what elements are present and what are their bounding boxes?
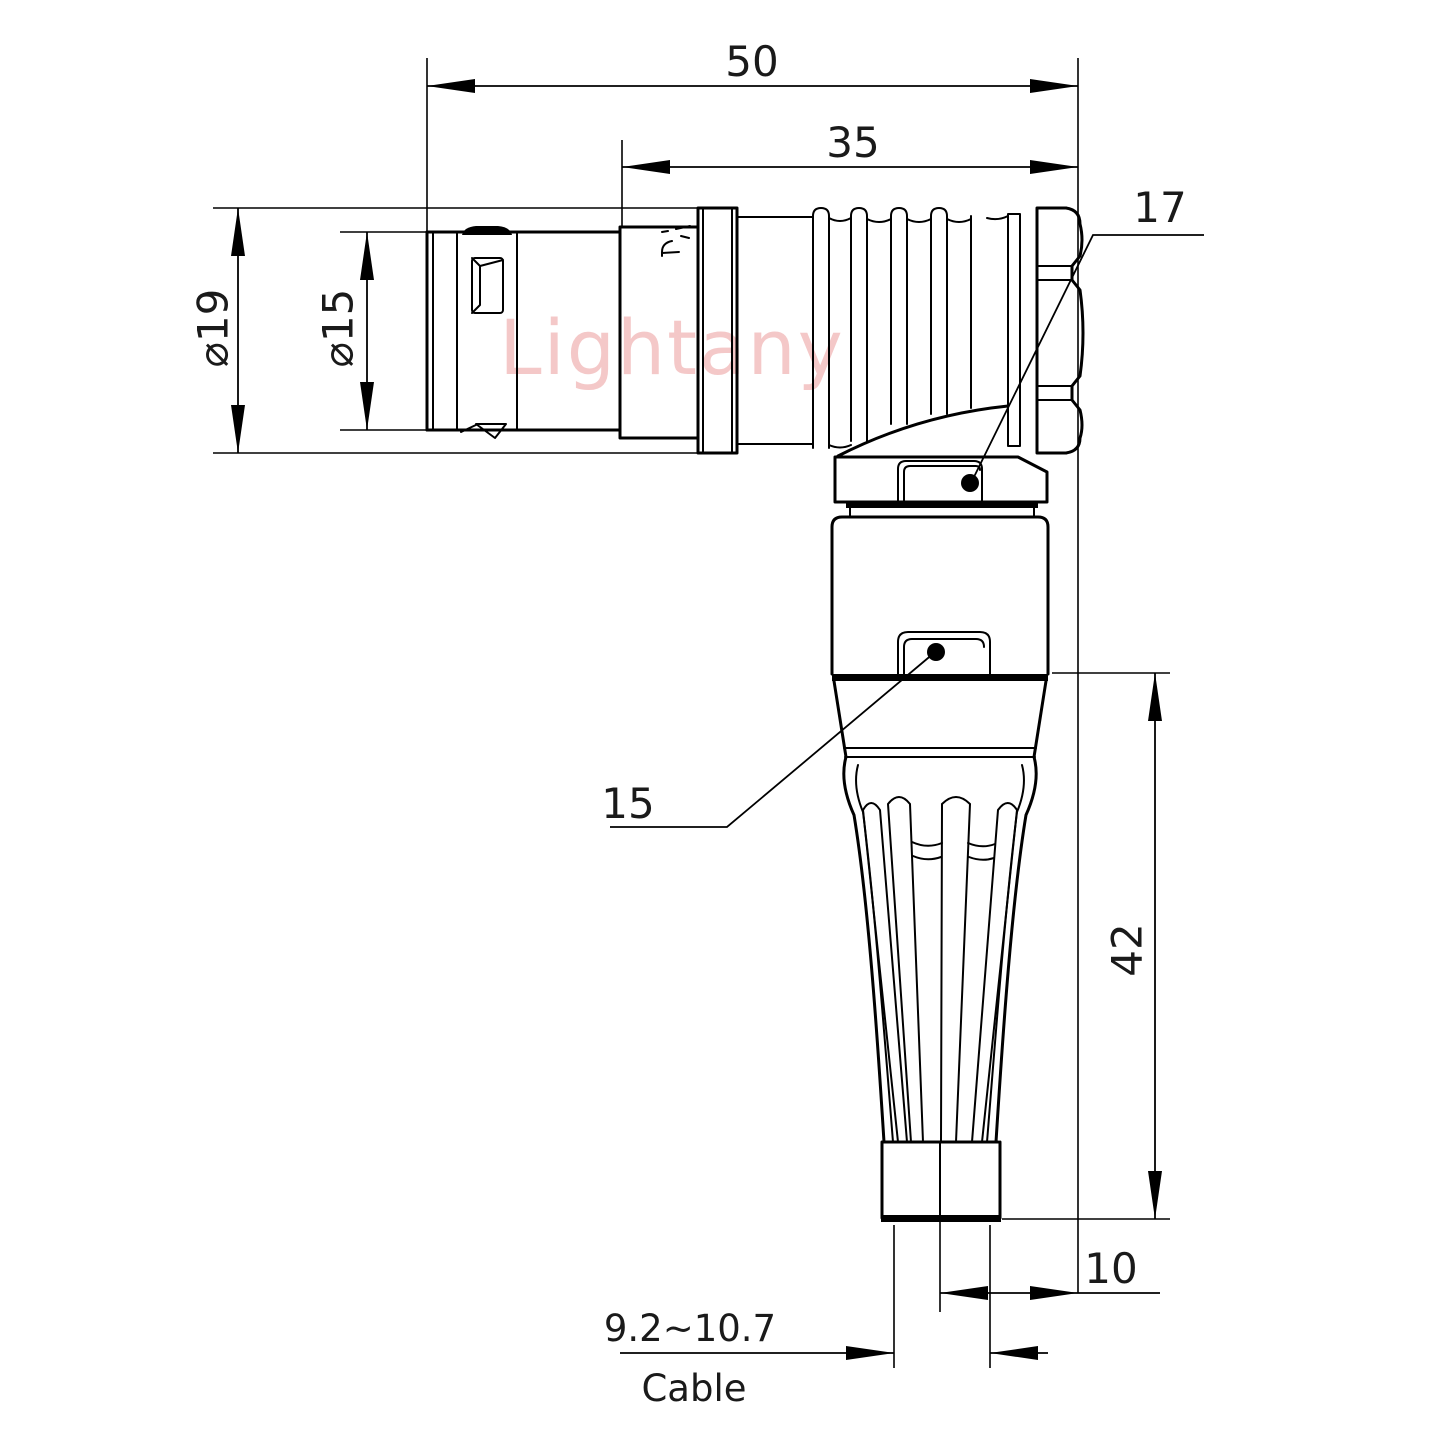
nut-hex-silhouette xyxy=(1066,208,1083,453)
fin-4 xyxy=(972,803,1017,1142)
leader-label-17: 17 xyxy=(1133,183,1186,232)
dimension-overall-length: 50 xyxy=(427,37,1078,232)
arrowhead-dia15-bottom xyxy=(360,382,374,430)
ferrule xyxy=(881,1142,1001,1222)
band-outline xyxy=(1008,214,1020,446)
fin-tie-lines xyxy=(912,842,995,860)
leader-elbow-nut: 17 xyxy=(972,183,1204,481)
boot-rib-4 xyxy=(931,208,947,414)
arrowhead-10-right xyxy=(1030,1286,1078,1300)
fin-3 xyxy=(941,797,970,1142)
elbow-hex-band xyxy=(835,457,1047,502)
watermark-text: Lightany xyxy=(499,303,844,392)
boot-top-surface xyxy=(737,216,1008,222)
rear-hex-nut xyxy=(1037,208,1083,453)
boot-rib-3 xyxy=(891,208,907,424)
latch-cap xyxy=(462,226,512,235)
leader-dot-15 xyxy=(927,643,945,661)
dimension-vertical-height: 42 xyxy=(1002,673,1170,1219)
arrowhead-50-right xyxy=(1030,79,1078,93)
taper-sides xyxy=(834,681,1046,757)
strain-relief xyxy=(844,757,1036,1142)
leader-label-15: 15 xyxy=(601,779,654,828)
nut-body xyxy=(1037,208,1066,453)
arrowhead-50-left xyxy=(427,79,475,93)
arrowhead-cable-right xyxy=(990,1346,1038,1360)
flare-right-inner xyxy=(987,765,1024,1142)
technical-drawing-canvas: Lightany xyxy=(0,0,1440,1440)
dim-label-10: 10 xyxy=(1084,1244,1137,1293)
elbow-section xyxy=(832,457,1048,1222)
dimension-cable-diameter: 9.2~10.7 Cable xyxy=(604,1225,1048,1410)
arrowhead-cable-left xyxy=(846,1346,894,1360)
arrowhead-42-bottom xyxy=(1148,1171,1162,1219)
dim-label-cable: Cable xyxy=(641,1367,746,1410)
dim-label-35: 35 xyxy=(826,118,879,167)
arrowhead-35-left xyxy=(622,160,670,174)
flare-left-inner xyxy=(856,765,893,1142)
brand-engraving xyxy=(662,226,690,256)
dimension-axis-offset: 10 xyxy=(940,1222,1160,1312)
nut-chamfer-lines xyxy=(1037,266,1072,400)
arrowhead-35-right xyxy=(1030,160,1078,174)
leader-dot-17 xyxy=(961,474,979,492)
dimension-plug-diameter: ⌀15 xyxy=(314,232,428,430)
arrowhead-dia19-bottom xyxy=(231,405,245,453)
boot-rib-2 xyxy=(851,208,867,441)
boot-bottom-surface xyxy=(737,444,851,448)
dim-label-dia15: ⌀15 xyxy=(314,289,363,368)
elbow-fillet-curve xyxy=(838,406,1008,456)
arrowhead-42-top xyxy=(1148,673,1162,721)
leader-line-17 xyxy=(972,235,1204,481)
arrowhead-10-left xyxy=(940,1286,988,1300)
dim-label-cable-range: 9.2~10.7 xyxy=(604,1307,776,1350)
elbow-band-outline xyxy=(835,457,1047,502)
taper-section xyxy=(834,681,1046,757)
dim-label-dia19: ⌀19 xyxy=(189,289,238,368)
dim-label-42: 42 xyxy=(1103,923,1152,976)
arrowhead-dia19-top xyxy=(231,208,245,256)
vertical-body xyxy=(832,517,1048,681)
dimension-rear-length: 35 xyxy=(622,118,1078,227)
dim-label-50: 50 xyxy=(725,37,778,86)
taper-lines xyxy=(844,748,1036,757)
body-dark-band xyxy=(832,674,1048,681)
washer xyxy=(846,502,1038,508)
ferrule-end-face xyxy=(881,1215,1001,1222)
rear-band xyxy=(1008,214,1020,446)
arrowhead-dia15-top xyxy=(360,232,374,280)
